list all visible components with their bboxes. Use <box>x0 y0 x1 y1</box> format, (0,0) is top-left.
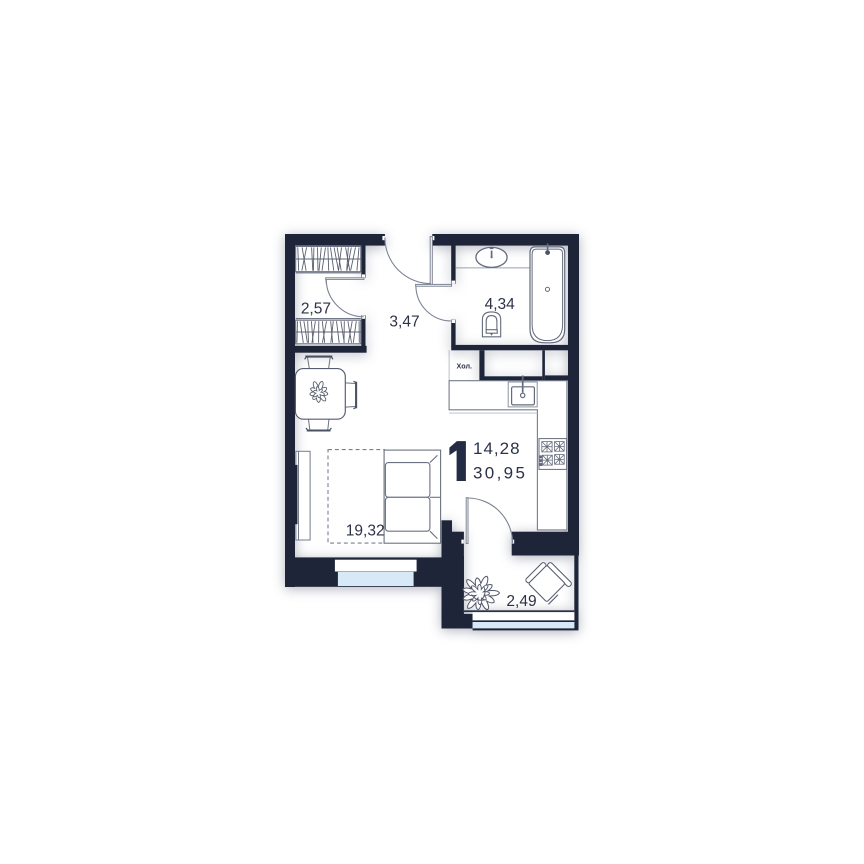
svg-text:19,32: 19,32 <box>346 523 385 540</box>
svg-text:2,57: 2,57 <box>301 301 331 318</box>
svg-text:3,47: 3,47 <box>389 314 419 331</box>
svg-text:14,28: 14,28 <box>473 439 521 458</box>
svg-text:2,49: 2,49 <box>506 593 536 610</box>
svg-text:30,95: 30,95 <box>473 463 527 482</box>
svg-text:4,34: 4,34 <box>485 296 516 313</box>
svg-text:Хол.: Хол. <box>457 362 472 371</box>
